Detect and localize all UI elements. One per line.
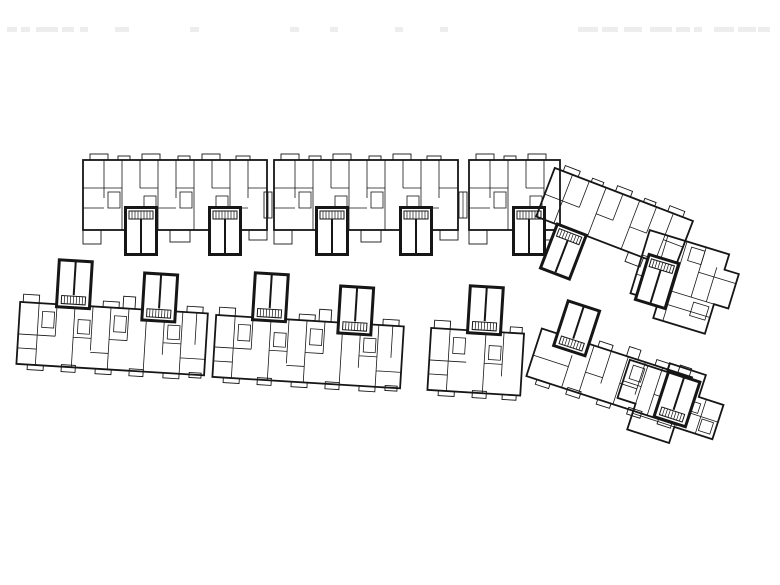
faint-mark <box>624 27 642 32</box>
faint-mark <box>190 27 199 32</box>
faint-mark <box>714 27 734 32</box>
faint-mark <box>694 27 702 32</box>
south-row-end-cluster <box>609 351 730 455</box>
faint-mark <box>650 27 672 32</box>
faint-mark <box>578 27 598 32</box>
south-row-block-mid <box>212 271 406 394</box>
faint-mark <box>290 27 299 32</box>
north-row-end-cluster <box>626 230 744 338</box>
north-row-link-1 <box>264 192 272 218</box>
north-row-block-mid <box>274 154 458 255</box>
faint-mark <box>758 27 770 32</box>
faint-mark <box>21 27 30 32</box>
faint-mark <box>80 27 88 32</box>
south-row-block-west <box>16 258 210 381</box>
faint-mark <box>440 27 448 32</box>
faint-mark <box>330 27 338 32</box>
faint-mark <box>602 27 618 32</box>
faint-mark <box>738 27 756 32</box>
faint-mark <box>62 27 74 32</box>
faint-print-artifacts <box>7 27 770 32</box>
faint-mark <box>395 27 403 32</box>
floor-plan-page <box>0 0 780 585</box>
floor-plan-drawing <box>0 0 780 585</box>
faint-mark <box>7 27 17 32</box>
north-row-link-2 <box>459 192 467 218</box>
north-row-block-east <box>469 154 560 255</box>
south-row-block-east <box>427 284 527 401</box>
faint-mark <box>115 27 129 32</box>
north-row-block-west <box>83 154 267 255</box>
faint-mark <box>676 27 690 32</box>
faint-mark <box>36 27 58 32</box>
buildings-root <box>16 154 743 455</box>
